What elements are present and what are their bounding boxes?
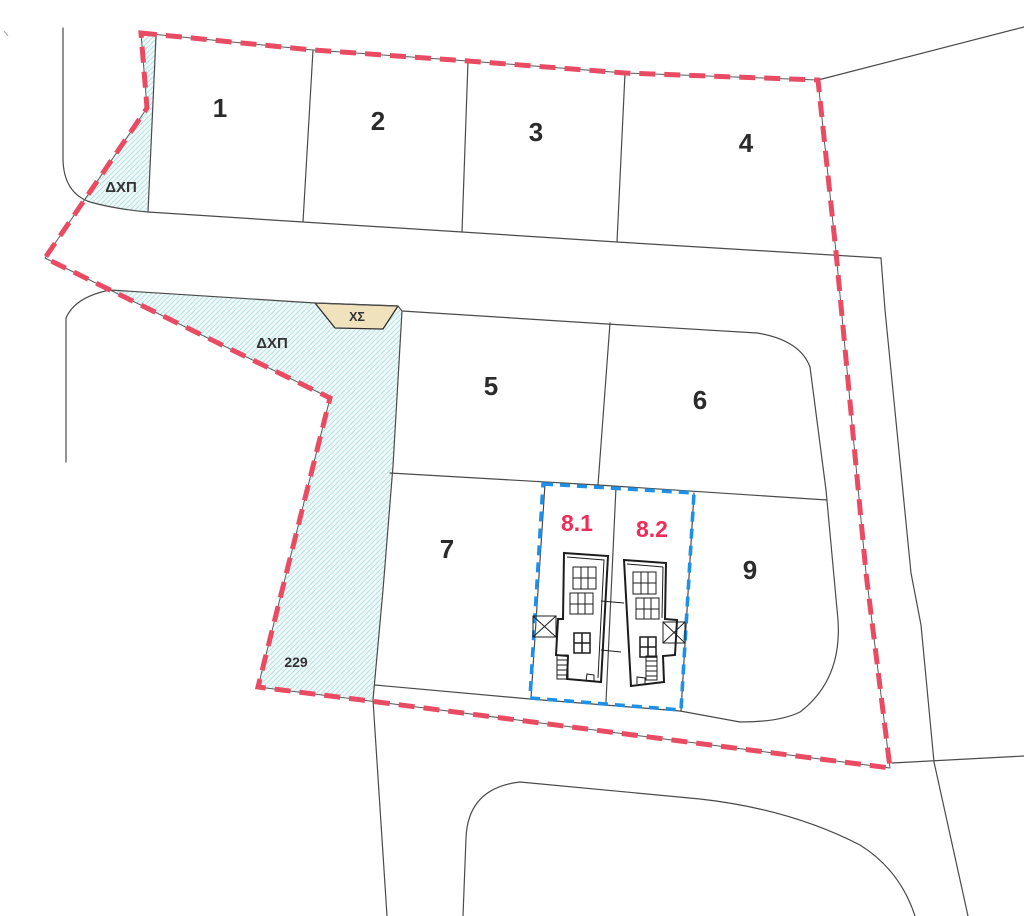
- plot-label-4: 4: [739, 128, 754, 158]
- open-space-label-top: ΔΧΠ: [105, 179, 137, 196]
- plot-label-5: 5: [484, 371, 498, 401]
- scan-mark: [4, 31, 8, 36]
- road-line-top-right: [818, 27, 1024, 80]
- open-space-label-main: ΔΧΠ: [256, 335, 288, 352]
- site-plan-canvas: 1 2 3 4 5 6 7 9 8.1 8.2 ΔΧΠ ΔΧΠ ΧΣ 229: [0, 0, 1024, 916]
- unit-label-8-1: 8.1: [561, 510, 593, 536]
- divider-plots-3-4: [617, 73, 625, 242]
- plot-label-9: 9: [743, 555, 757, 585]
- building-8-1-veranda-x: [533, 616, 556, 637]
- plot-label-7: 7: [440, 534, 454, 564]
- cadastral-lines: [4, 27, 1024, 916]
- parcel-number-label: 229: [284, 654, 308, 670]
- divider-upper-lower-plots: [390, 473, 827, 500]
- divider-plots-2-3: [462, 61, 468, 232]
- road-line-left-lower: [66, 290, 110, 462]
- unit-label-8-2: 8.2: [636, 516, 668, 542]
- building-8-2: [601, 560, 685, 686]
- site-plan: 1 2 3 4 5 6 7 9 8.1 8.2 ΔΧΠ ΔΧΠ ΧΣ 229: [0, 0, 1024, 916]
- boundary-red-dashed: [45, 33, 890, 768]
- divider-plots-5-6: [598, 323, 610, 485]
- boundary-underline: [45, 33, 890, 768]
- divider-units-8-1-8-2: [606, 487, 616, 702]
- plot-label-2: 2: [371, 106, 385, 136]
- lower-block-bottom-edge: [375, 685, 740, 722]
- building-8-1-steps: [557, 655, 568, 679]
- plot-label-6: 6: [693, 385, 707, 415]
- building-8-1: [533, 553, 608, 682]
- road-line-bottom: [463, 782, 915, 916]
- plot-label-1: 1: [213, 93, 227, 123]
- plot-label-3: 3: [529, 117, 543, 147]
- road-line-bottom-right: [892, 756, 1024, 763]
- top-block-bottom-edge: [148, 212, 881, 258]
- unit-8-outline-blue: [530, 484, 694, 710]
- road-line-right: [881, 258, 968, 916]
- lower-block-right-edge: [740, 367, 838, 722]
- divider-plots-1-2: [303, 50, 313, 222]
- parking-label-xs: ΧΣ: [349, 310, 365, 324]
- building-8-2-outline: [624, 560, 677, 686]
- building-8-1-outline: [556, 553, 608, 682]
